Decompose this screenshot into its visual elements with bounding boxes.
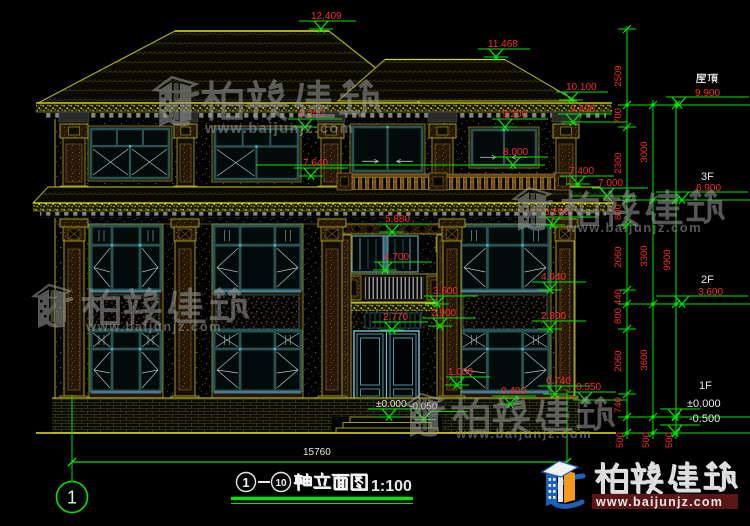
svg-text:440: 440 bbox=[613, 289, 624, 305]
svg-text:2.770: 2.770 bbox=[383, 312, 408, 323]
svg-text:-0.500: -0.500 bbox=[689, 413, 720, 425]
svg-text:1: 1 bbox=[242, 475, 249, 490]
svg-text:10.100: 10.100 bbox=[566, 82, 597, 93]
svg-text:2509: 2509 bbox=[613, 65, 624, 86]
svg-text:4.700: 4.700 bbox=[384, 252, 409, 263]
svg-text:0.740: 0.740 bbox=[546, 376, 571, 387]
svg-text:11.468: 11.468 bbox=[488, 39, 518, 50]
svg-text:www.baijunjz.com: www.baijunjz.com bbox=[565, 220, 702, 235]
svg-text:7.400: 7.400 bbox=[569, 166, 594, 177]
svg-text:www.baijunjz.com: www.baijunjz.com bbox=[204, 121, 354, 137]
svg-text:1F: 1F bbox=[699, 380, 712, 392]
svg-text:2.800: 2.800 bbox=[541, 311, 566, 322]
svg-text:500: 500 bbox=[641, 432, 652, 448]
svg-text:3000: 3000 bbox=[639, 141, 650, 162]
svg-text:2.900: 2.900 bbox=[431, 308, 456, 319]
svg-text:5.880: 5.880 bbox=[385, 214, 410, 225]
svg-text:0.550: 0.550 bbox=[576, 382, 601, 393]
svg-text:8.000: 8.000 bbox=[503, 147, 528, 158]
svg-text:1.000: 1.000 bbox=[448, 367, 473, 378]
svg-text:www.baijunjz.com: www.baijunjz.com bbox=[595, 495, 723, 509]
svg-text:www.baijunjz.com: www.baijunjz.com bbox=[455, 426, 592, 441]
svg-text:7.000: 7.000 bbox=[598, 178, 623, 189]
svg-text:2300: 2300 bbox=[613, 152, 624, 173]
svg-text:10: 10 bbox=[275, 478, 287, 489]
svg-text:±0.000: ±0.000 bbox=[376, 399, 407, 410]
svg-text:0.400: 0.400 bbox=[501, 386, 526, 397]
svg-text:9.400: 9.400 bbox=[570, 104, 595, 115]
svg-text:500: 500 bbox=[615, 432, 626, 448]
svg-text:740: 740 bbox=[613, 397, 624, 413]
svg-text:3300: 3300 bbox=[639, 245, 650, 266]
svg-text:2060: 2060 bbox=[613, 350, 624, 371]
svg-text:2F: 2F bbox=[701, 274, 714, 286]
svg-text:800: 800 bbox=[613, 308, 624, 324]
svg-text:700: 700 bbox=[613, 108, 624, 124]
svg-text:1: 1 bbox=[67, 488, 77, 508]
svg-text:1:100: 1:100 bbox=[371, 478, 412, 495]
svg-text:4.040: 4.040 bbox=[541, 272, 566, 283]
svg-text:3.600: 3.600 bbox=[433, 286, 458, 297]
svg-text:±0.000: ±0.000 bbox=[687, 398, 721, 410]
svg-text:7.640: 7.640 bbox=[303, 158, 328, 169]
svg-text:3600: 3600 bbox=[639, 349, 650, 370]
svg-text:3F: 3F bbox=[701, 171, 714, 183]
svg-text:www.baijunjz.com: www.baijunjz.com bbox=[85, 319, 222, 334]
svg-text:9.200: 9.200 bbox=[502, 109, 527, 120]
svg-text:12.409: 12.409 bbox=[311, 11, 342, 22]
svg-text:9900: 9900 bbox=[662, 249, 673, 270]
svg-text:15760: 15760 bbox=[303, 447, 331, 458]
svg-text:2060: 2060 bbox=[613, 246, 624, 267]
